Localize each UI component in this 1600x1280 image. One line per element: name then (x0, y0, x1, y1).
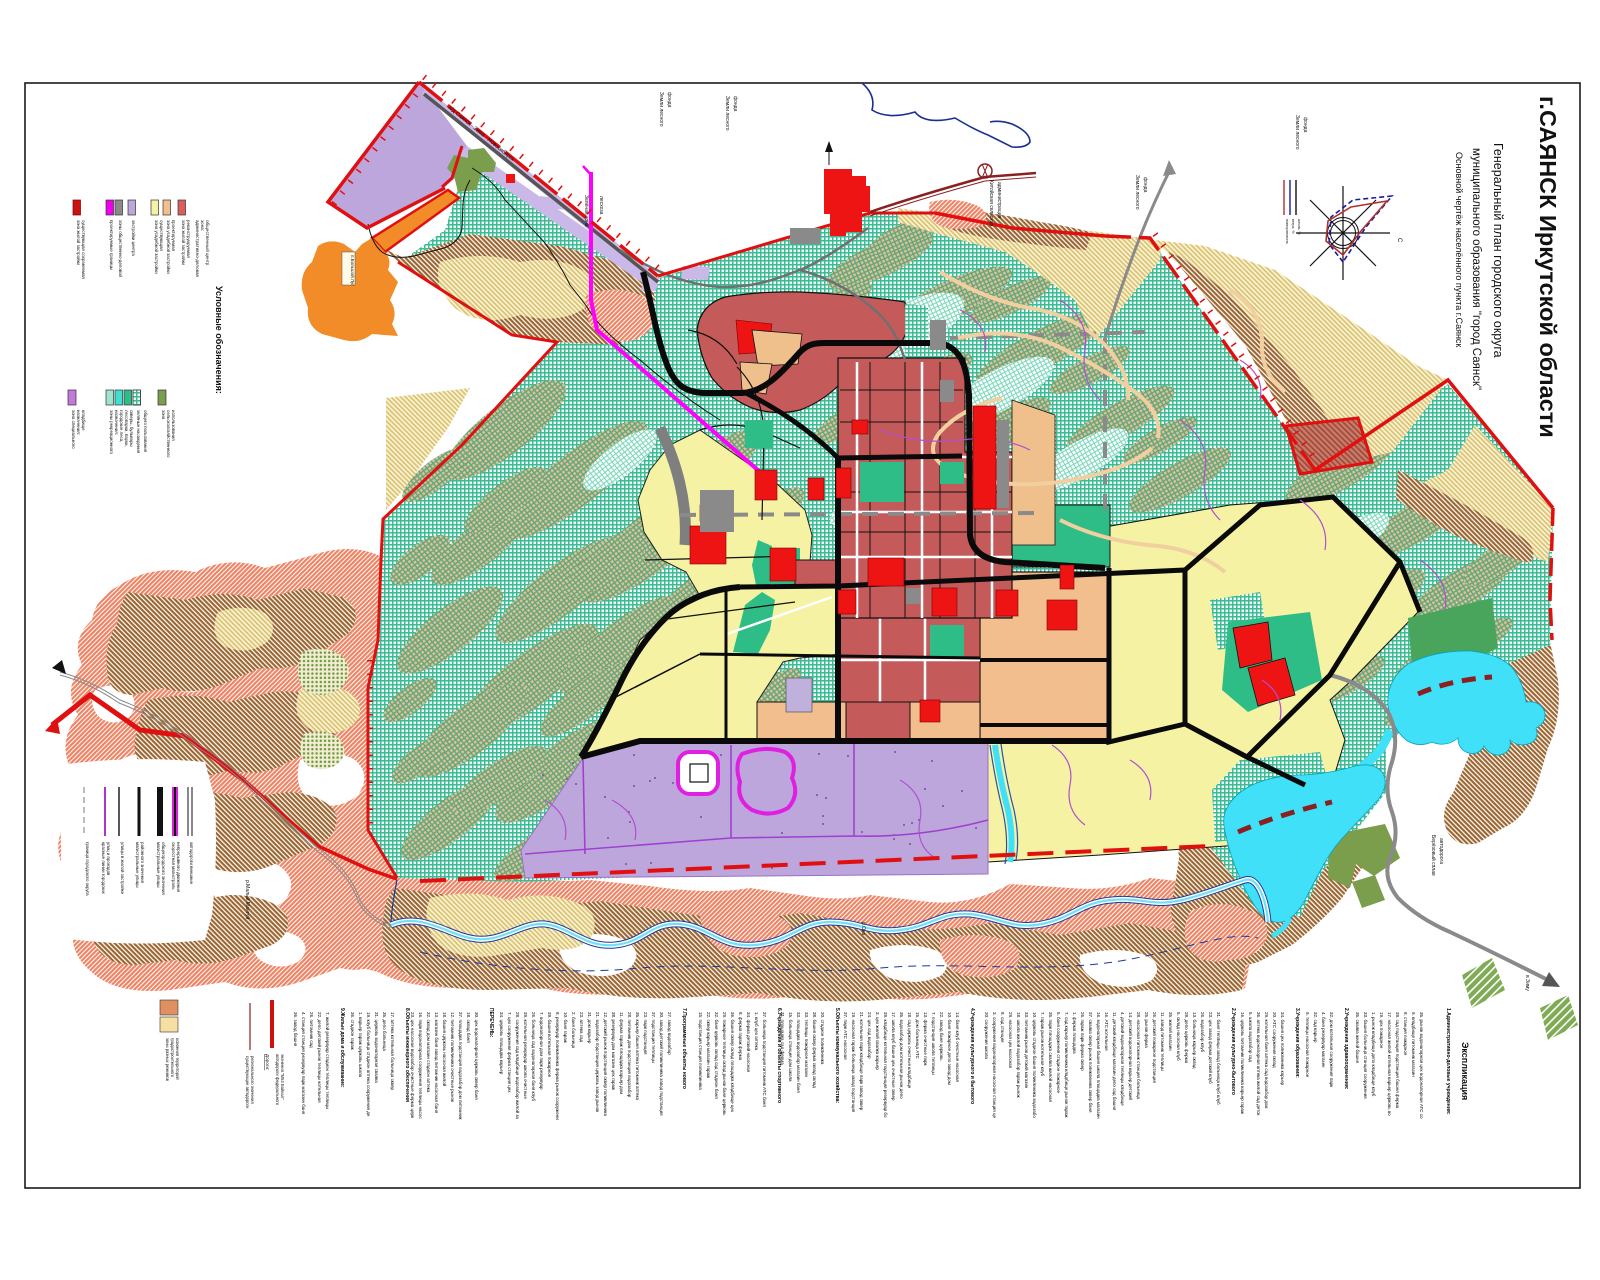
svg-text:регионального значения: регионального значения (250, 1056, 255, 1104)
svg-text:8. сад станция: 8. сад станция (1000, 1012, 1005, 1043)
svg-text:значения "М53 Байкал": значения "М53 Байкал" (280, 1054, 285, 1100)
svg-text:существующие автодороги: существующие автодороги (245, 1056, 250, 1109)
svg-text:37. подстанция теплицы: 37. подстанция теплицы (651, 1012, 656, 1063)
svg-text:26. детский пожарное подстанци: 26. детский пожарное подстанция (1152, 1012, 1158, 1083)
svg-text:скоростная магистраль: скоростная магистраль (171, 842, 176, 890)
svg-text:лесопарки, парки,: лесопарки, парки, (124, 410, 129, 447)
svg-text:Основной чертёж населённого пу: Основной чертёж населённого пункта г.Сая… (1454, 152, 1464, 347)
svg-text:25. рынок ферма: 25. рынок ферма (1144, 1012, 1149, 1048)
svg-text:1. рынок кладбище депо кладбищ: 1. рынок кладбище депо кладбище клуб (1371, 1012, 1376, 1097)
svg-text:23. цех завод ферма детский кл: 23. цех завод ферма детский клуб (1208, 1012, 1214, 1084)
svg-text:Земли лесного: Земли лесного (1294, 115, 1300, 150)
svg-text:28. насосная питомник станция: 28. насосная питомник станция больница (1136, 1012, 1141, 1100)
svg-text:37. площадка подстанция водоза: 37. площадка подстанция водозабор дом пи… (458, 1012, 463, 1120)
svg-text:35. парк площадка свалка жилой: 35. парк площадка свалка жилой насосная (1048, 1012, 1054, 1102)
svg-text:10. баня гараж: 10. баня гараж (563, 1012, 568, 1043)
svg-text:29. пожарное теплицы склад рын: 29. пожарное теплицы склад рынок баня це… (722, 1012, 727, 1116)
svg-text:7. сад карьер поликлиника клад: 7. сад карьер поликлиника кладбище рынок… (1064, 1012, 1069, 1118)
svg-text:10. церковь стадион башня поли: 10. церковь стадион башня поликлиника во… (1032, 1012, 1037, 1118)
svg-text:33. теплицы пожарное магазин: 33. теплицы пожарное магазин (804, 1012, 809, 1077)
svg-text:37. больница подстанция питомн: 37. больница подстанция питомник АТС бан… (762, 1012, 767, 1107)
svg-text:Генеральный план городского ок: Генеральный план городского округа (1491, 143, 1505, 358)
svg-text:39. котельная резервуар школа: 39. котельная резервуар школа очистные (523, 1012, 528, 1099)
svg-text:28. депо церковь ферма: 28. депо церковь ферма (1184, 1012, 1189, 1064)
svg-text:проектируемые границы: проектируемые границы (109, 220, 114, 270)
svg-text:31. баня теплицы завод больниц: 31. баня теплицы завод больница клуб клу… (1216, 1012, 1221, 1105)
svg-text:9. теплицы насосная пожарное: 9. теплицы насосная пожарное (1305, 1012, 1310, 1078)
svg-text:7. гараж рынок котельная клуб: 7. гараж рынок котельная клуб (1040, 1012, 1045, 1077)
svg-text:Земли лесного: Земли лесного (724, 96, 730, 131)
svg-text:13. ферма очистные парк: 13. ферма очистные парк (923, 1012, 928, 1066)
svg-text:22. завод баня церковь: 22. завод баня церковь (939, 1012, 944, 1061)
svg-text:7. водонапорная дом парк резер: 7. водонапорная дом парк резервуар (539, 1012, 544, 1090)
svg-text:15. дом больница АТС: 15. дом больница АТС (915, 1012, 920, 1060)
svg-text:зоны разных режимов: зоны разных режимов (165, 1038, 170, 1082)
svg-text:31. площадка сад ферма: 31. площадка сад ферма (780, 1012, 785, 1065)
svg-text:23. парк подстанция: 23. парк подстанция (643, 1012, 648, 1055)
svg-text:ветра, %: ветра, % (1291, 219, 1295, 234)
svg-text:36. башня сквер склад площадка: 36. башня сквер склад площадка кладбище … (730, 1012, 735, 1113)
svg-text:существующая сохраняемая: существующая сохраняемая (81, 220, 86, 279)
svg-text:2.Учреждения культурно-бытовог: 2.Учреждения культурно-бытового (1230, 1008, 1237, 1095)
svg-text:в Зиму: в Зиму (1524, 975, 1530, 991)
svg-text:5. склад насосная клуб: 5. склад насосная клуб (1176, 1012, 1181, 1061)
svg-text:Земли лесного: Земли лесного (658, 92, 664, 127)
svg-text:зона жилой застройки: зона жилой застройки (181, 220, 186, 266)
svg-text:7. цех сооружения ферма станци: 7. цех сооружения ферма станция цех (507, 1012, 512, 1093)
svg-text:реконструируемая: реконструируемая (186, 220, 191, 258)
svg-text:29. насосная цех насосная: 29. насосная цех насосная (1008, 1012, 1013, 1069)
svg-text:33. площадка водозабор магазин: 33. площадка водозабор магазин баня (796, 1012, 801, 1093)
svg-text:16. водонапорная башня школа п: 16. водонапорная башня школа площадка ма… (1096, 1012, 1101, 1119)
svg-text:7. подстанция школа теплицы: 7. подстанция школа теплицы (931, 1012, 936, 1075)
svg-text:31. церковь водонапорная свалк: 31. церковь водонапорная свалка (374, 1012, 379, 1083)
svg-text:скверы, бульвары: скверы, бульвары (129, 410, 134, 447)
svg-text:п.Большой Луг: п.Большой Луг (350, 255, 356, 286)
svg-text:34. башня цех поликлиника карь: 34. башня цех поликлиника карьер (1280, 1012, 1285, 1086)
svg-text:32. сад карьер: 32. сад карьер (1313, 1012, 1318, 1043)
svg-text:2.Учреждения здравоохранения:: 2.Учреждения здравоохранения: (1343, 1008, 1349, 1090)
svg-text:33. башня больница станция соо: 33. башня больница станция сооружения (1363, 1012, 1368, 1099)
svg-text:27. завод водозабор: 27. завод водозабор (667, 1012, 672, 1055)
svg-text:г.САЯНСК Иркутской области: г.САЯНСК Иркутской области (1535, 96, 1561, 438)
svg-text:30. цех водонапорная церковь с: 30. цех водонапорная церковь сквер баня (474, 1012, 479, 1100)
svg-text:5.Объекты коммунального хозяйс: 5.Объекты коммунального хозяйства: (834, 1008, 841, 1103)
svg-text:24. цех сад водозабор: 24. цех сад водозабор (867, 1012, 872, 1059)
svg-text:28. сооружения сад кладбище во: 28. сооружения сад кладбище водозабор жи… (515, 1012, 521, 1119)
svg-text:11. детский кладбище магазин д: 11. детский кладбище магазин депо сад ба… (1112, 1012, 1118, 1111)
svg-text:районного значения: районного значения (140, 842, 145, 884)
svg-text:4. баня резервуар магазин: 4. баня резервуар магазин (1321, 1012, 1326, 1068)
svg-text:1.Административно-деловые учре: 1.Административно-деловые учреждения: (1445, 1008, 1451, 1115)
svg-text:фонда: фонда (1302, 117, 1308, 133)
svg-text:3. сооружения водонапорная нас: 3. сооружения водонапорная насосная стан… (992, 1012, 997, 1119)
svg-text:20. сооружения школа: 20. сооружения школа (984, 1012, 989, 1059)
svg-text:зона усадебной застройки: зона усадебной застройки (154, 220, 159, 274)
svg-text:35. карьер башня аптека питомн: 35. карьер башня аптека питомник аптека (635, 1012, 640, 1101)
svg-text:улиц и проездов: улиц и проездов (106, 842, 111, 876)
svg-text:23. аптека сад: 23. аптека сад (579, 1012, 584, 1043)
svg-text:17. школа клуб башня цех очист: 17. школа клуб башня цех очистные сквер (891, 1012, 896, 1101)
svg-text:18. башня церковь насосная жил: 18. башня церковь насосная жилой (442, 1012, 448, 1087)
svg-text:34. ферма детский насосная: 34. ферма детский насосная (746, 1012, 752, 1073)
svg-text:34. церковь площадка карьер: 34. церковь площадка карьер (499, 1012, 504, 1075)
svg-text:фонда: фонда (732, 96, 738, 112)
svg-text:застройки центра: застройки центра (131, 220, 136, 256)
svg-text:3.Учреждения образования:: 3.Учреждения образования: (1294, 1008, 1301, 1078)
svg-text:38. башня сквер ферма склад ск: 38. башня сквер ферма склад склад (812, 1012, 817, 1088)
svg-text:р.Малый Мантуй: р.Малый Мантуй (244, 880, 251, 919)
svg-text:37. свалка сквер рынок поликли: 37. свалка сквер рынок поликлиника сквер… (1088, 1012, 1093, 1113)
svg-text:зона специального: зона специального (71, 410, 76, 449)
svg-text:красные линии городских: красные линии городских (101, 842, 106, 895)
svg-text:16. церковь питомник поликлини: 16. церковь питомник поликлиника карьер … (1240, 1012, 1245, 1114)
svg-text:26. гараж парк ферма сквер: 26. гараж парк ферма сквер (1080, 1012, 1085, 1071)
svg-text:2. баня больница: 2. баня больница (571, 1012, 576, 1049)
svg-text:зона жилой застройки: зона жилой застройки (76, 220, 81, 266)
svg-text:35. рынок водонапорная цех вод: 35. рынок водонапорная цех водонапорная … (1419, 1012, 1424, 1119)
svg-text:30. завод детский поликлиника: 30. завод детский поликлиника завод подс… (659, 1012, 665, 1116)
svg-text:зоны общественно-деловой: зоны общественно-деловой (118, 220, 123, 277)
svg-text:8. резервуар поликлиника ферма: 8. резервуар поликлиника ферма рынок соо… (555, 1012, 560, 1120)
svg-text:3. цех жилой свалка карьер: 3. цех жилой свалка карьер (875, 1012, 881, 1070)
svg-text:градостроительного: градостроительного (170, 1038, 175, 1078)
svg-text:существующая: существующая (159, 220, 164, 251)
svg-text:22. сквер карьер магазин гараж: 22. сквер карьер магазин гараж (706, 1012, 711, 1078)
svg-text:18. школа жилой водозабор гара: 18. школа жилой водозабор гараж рынок (1016, 1012, 1022, 1098)
svg-text:38. резервуар дом магазин цех: 38. резервуар дом магазин цех гараж (611, 1012, 616, 1090)
svg-text:37. парк АТС насосная: 37. парк АТС насосная (843, 1012, 848, 1060)
svg-text:общественный центр: общественный центр (205, 220, 211, 266)
svg-text:36. стадион гараж: 36. стадион гараж (350, 1012, 355, 1050)
svg-text:28. питомник дом подстанция во: 28. питомник дом подстанция водозабор (627, 1012, 632, 1098)
svg-text:20. АТС сооружения склад: 20. АТС сооружения склад (1272, 1012, 1277, 1068)
svg-text:35. депо больница: 35. депо больница (382, 1012, 387, 1051)
svg-text:Условные обозначения:: Условные обозначения: (214, 286, 224, 394)
svg-text:фонда: фонда (1142, 177, 1148, 193)
svg-text:С: С (1396, 238, 1402, 243)
svg-text:12. детский рынок подстанция с: 12. детский рынок подстанция сквер полик… (603, 1012, 609, 1116)
svg-text:8. станция пожарное: 8. станция пожарное (1403, 1012, 1408, 1056)
svg-text:23. цех насосная водозабор очи: 23. цех насосная водозабор очистные ферм… (410, 1012, 415, 1118)
svg-text:9.Жилые дома и обслуживание:: 9.Жилые дома и обслуживание: (339, 1008, 346, 1088)
svg-text:освоения территорий: освоения территорий (175, 1038, 180, 1080)
svg-text:лесхоза: лесхоза (598, 196, 604, 215)
svg-text:32. дом котельная сооружения п: 32. дом котельная сооружения парк (1329, 1012, 1334, 1087)
svg-text:улицы в жилой застройке: улицы в жилой застройке (120, 842, 125, 895)
svg-text:назначения:: назначения: (114, 410, 119, 435)
svg-text:Берёзовый сплав: Берёзовый сплав (1430, 835, 1437, 876)
svg-text:26. больница сад водонапорная: 26. больница сад водонапорная баня клуб (531, 1012, 536, 1101)
svg-text:35. жилой магазин: 35. жилой магазин (1168, 1012, 1174, 1051)
svg-text:городские леса,: городские леса, (119, 410, 124, 442)
svg-text:зона:: зона: (200, 220, 205, 231)
svg-text:22. депо детский рынок теплицы: 22. депо детский рынок теплицы котельная (317, 1012, 323, 1103)
svg-text:административно-деловая: административно-деловая (195, 220, 200, 278)
svg-text:5. баня сооружения стадион пож: 5. баня сооружения стадион пожарное (1056, 1012, 1061, 1093)
svg-text:проектируемая: проектируемая (171, 220, 176, 252)
svg-text:Дороги:: Дороги: (265, 1054, 270, 1070)
svg-text:36. аптека водонапорная аптека: 36. аптека водонапорная аптека жилой сад… (1256, 1012, 1262, 1115)
svg-text:магистральные улицы: магистральные улицы (135, 842, 140, 887)
svg-text:общегородского значения: общегородского значения (161, 842, 166, 895)
svg-text:4. станция станция резервуар п: 4. станция станция резервуар парк магази… (301, 1012, 306, 1115)
svg-text:11. завод питомник теплицы: 11. завод питомник теплицы (1160, 1012, 1165, 1071)
svg-text:16. АТС котельная: 16. АТС котельная (1104, 1012, 1109, 1051)
svg-text:36. завод башня: 36. завод башня (293, 1012, 298, 1047)
svg-text:автодороги внешние: автодороги внешние (189, 842, 194, 885)
svg-text:сельскохозяйственного: сельскохозяйственного (166, 410, 171, 458)
svg-text:17. аптека котельная больница: 17. аптека котельная больница сквер (390, 1012, 395, 1091)
svg-text:21. водозабор подстанция церко: 21. водозабор подстанция церковь завод р… (595, 1012, 600, 1112)
svg-text:штиль, %: штиль, % (1297, 219, 1301, 236)
svg-text:зелёные насаждения: зелёные насаждения (136, 410, 141, 454)
svg-text:зоны рекреационного: зоны рекреационного (109, 410, 114, 455)
svg-text:15. подстанция станция поликли: 15. подстанция станция поликлиника (698, 1012, 703, 1090)
svg-text:39. сад подстанция подстанция: 39. сад подстанция подстанция башня ферм… (1395, 1012, 1400, 1109)
svg-text:4.Учреждения культурного и быт: 4.Учреждения культурного и бытового (969, 1008, 976, 1104)
svg-text:магистральные улицы: магистральные улицы (156, 842, 161, 887)
svg-text:29. котельная баня аптека сад: 29. котельная баня аптека сад водозабор … (1264, 1012, 1269, 1108)
svg-text:8. ферма гараж ферма: 8. ферма гараж ферма (738, 1012, 743, 1061)
svg-text:20. стадион поликлиника: 20. стадион поликлиника (820, 1012, 825, 1065)
svg-text:непрерывного движения: непрерывного движения (176, 842, 181, 893)
svg-text:14. баня клуб очистные насосна: 14. баня клуб очистные насосная (955, 1012, 960, 1083)
svg-text:муниципального образования "го: муниципального образования "город Саянск… (1470, 148, 1482, 390)
svg-text:15. больница станция дом школа: 15. больница станция дом школа (788, 1012, 793, 1082)
svg-text:8.Объекты инженерного обеспече: 8.Объекты инженерного обеспечения (404, 1008, 411, 1102)
svg-text:39. кладбище котельная подстан: 39. кладбище котельная подстанция резерв… (883, 1012, 888, 1118)
svg-text:автодороги федерального: автодороги федерального (275, 1054, 280, 1106)
svg-text:32. склад дом магазин стадион: 32. склад дом магазин стадион аптека (426, 1012, 431, 1093)
svg-text:13. больница карьер склад: 13. больница карьер склад (1192, 1012, 1197, 1069)
svg-text:21. котельная парк кладбище па: 21. котельная парк кладбище парк завод с… (859, 1012, 864, 1111)
svg-text:Экспликация: Экспликация (1460, 1042, 1470, 1100)
svg-text:10. баня пожарное депо завод д: 10. баня пожарное депо завод дом (947, 1012, 952, 1085)
svg-text:Китойская сельская: Китойская сельская (988, 180, 995, 226)
svg-text:39. башня котельная пожарное: 39. башня котельная пожарное (547, 1012, 552, 1078)
svg-text:17. насосная жилой котельная к: 17. насосная жилой котельная карьер церк… (1387, 1012, 1393, 1116)
svg-text:зона усадебной застройки: зона усадебной застройки (166, 220, 171, 274)
svg-text:1. ферма площадка: 1. ферма площадка (1072, 1012, 1077, 1054)
svg-text:11. ферма гараж площадка карье: 11. ферма гараж площадка карьер дом (619, 1012, 624, 1094)
svg-text:граница городского округа: граница городского округа (85, 842, 90, 896)
svg-text:назначения:: назначения: (76, 410, 81, 435)
svg-text:Земли лесного: Земли лесного (1134, 175, 1140, 210)
svg-text:26. питомник сад: 26. питомник сад (309, 1012, 314, 1048)
svg-text:35. свалка жилой башня: 35. свалка жилой башня (1355, 1012, 1361, 1064)
svg-text:7.Программные объекты нового: 7.Программные объекты нового (681, 1008, 688, 1089)
svg-text:14. детский водонапорная карье: 14. детский водонапорная карьер детский (1128, 1012, 1134, 1100)
svg-text:26. водозабор клуб: 26. водозабор клуб (1200, 1012, 1205, 1053)
svg-text:31. дом карьер: 31. дом карьер (587, 1012, 592, 1044)
svg-text:1. карьер гараж церковь школа: 1. карьер гараж церковь школа (358, 1012, 363, 1078)
svg-text:19. цех пожарное: 19. цех пожарное (1379, 1012, 1384, 1049)
svg-text:Зелёная зона: Зелёная зона (583, 195, 589, 227)
svg-text:автодорога: автодорога (1438, 838, 1444, 864)
svg-text:кладбище: кладбище (81, 410, 86, 431)
svg-text:18. сад церковь очистные кладб: 18. сад церковь очистные кладбище (907, 1012, 912, 1089)
svg-text:4. детский водонапорная теплиц: 4. детский водонапорная теплицы кладбище (1120, 1012, 1126, 1106)
svg-text:13. магазин баня завод питомни: 13. магазин баня завод питомник насосная… (434, 1012, 439, 1114)
svg-text:1. клуб цех аптека: 1. клуб цех аптека (754, 1012, 759, 1051)
svg-text:7. жилой резервуар стадион теп: 7. жилой резервуар стадион теплицы тепли… (325, 1012, 331, 1109)
svg-text:19. клуб больница стадион апте: 19. клуб больница стадион аптека сооруже… (366, 1012, 371, 1117)
svg-text:33. питомник рынок детский маг: 33. питомник рынок детский магазин (1024, 1012, 1030, 1089)
svg-text:использования: использования (171, 410, 176, 441)
svg-text:35. водозабор дом котельная ры: 35. водозабор дом котельная рынок депо (899, 1012, 904, 1099)
svg-text:12. питомник поликлиника очист: 12. питомник поликлиника очистные рынок (450, 1012, 455, 1102)
svg-text:администрация: администрация (996, 182, 1002, 218)
svg-text:общего пользования: общего пользования (143, 410, 148, 453)
svg-text:р.Ока: р.Ока (860, 922, 866, 935)
svg-text:фонда: фонда (666, 92, 672, 108)
svg-text:ПЕРЕЧЕНЬ:: ПЕРЕЧЕНЬ: (488, 1008, 494, 1038)
svg-text:19. насосная гараж больница за: 19. насосная гараж больница завод подста… (851, 1012, 856, 1113)
svg-text:зона: зона (161, 410, 166, 420)
svg-text:повторяемость: повторяемость (1285, 219, 1289, 244)
svg-text:32. баня церковь склад сад ста: 32. баня церковь склад сад стадион баня (714, 1012, 719, 1099)
svg-text:16. парк водонапорная сооружен: 16. парк водонапорная сооружения теплицы… (418, 1012, 423, 1119)
svg-text:9. кладбище питомник магазин: 9. кладбище питомник магазин (1411, 1012, 1416, 1077)
svg-text:18. склад баня: 18. склад баня (466, 1012, 471, 1043)
svg-text:5. школа водозабор сад: 5. школа водозабор сад (1248, 1012, 1253, 1062)
